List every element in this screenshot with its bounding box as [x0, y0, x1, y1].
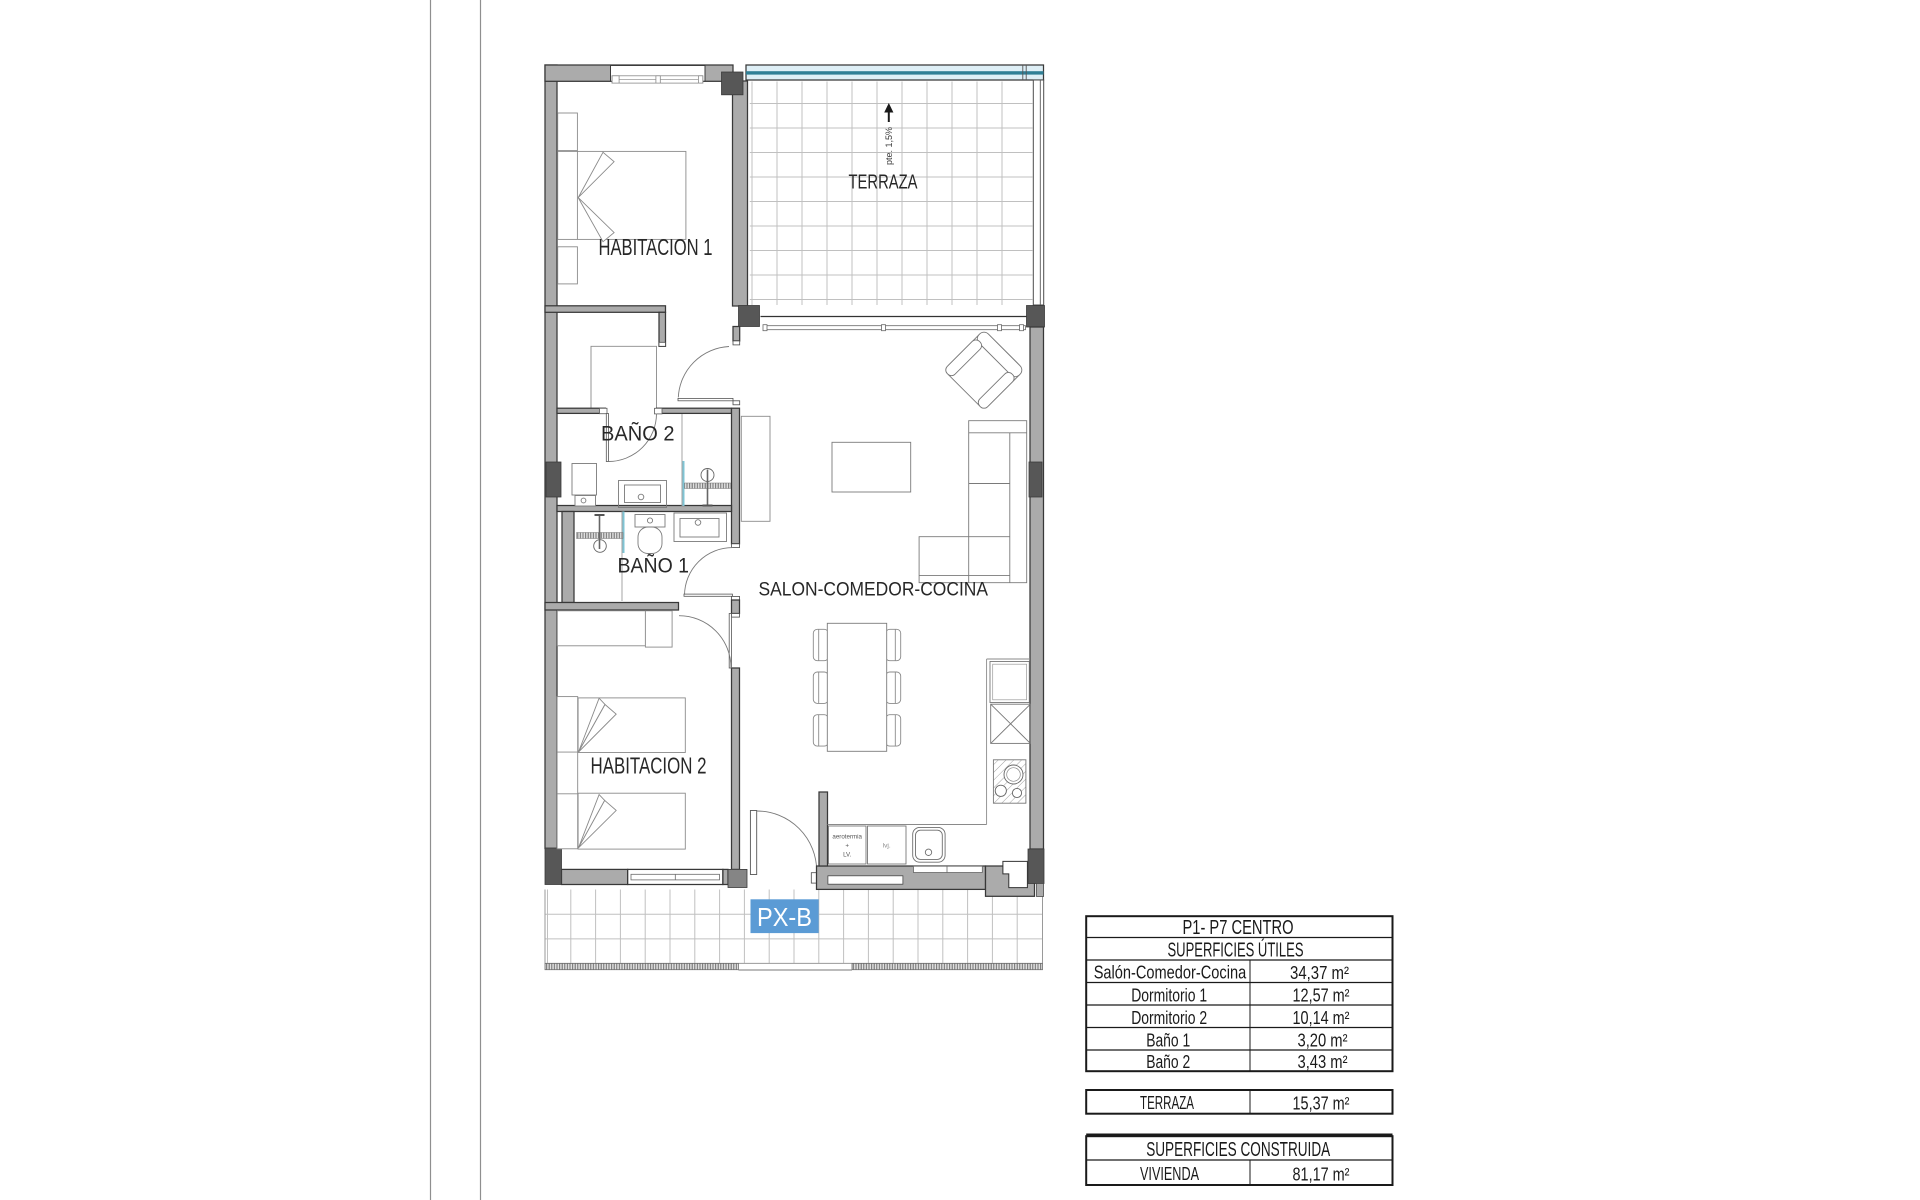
svg-text:HABITACION 2: HABITACION 2 [591, 753, 707, 779]
svg-text:HABITACION 1: HABITACION 1 [599, 234, 713, 260]
svg-text:VIVIENDA: VIVIENDA [1140, 1164, 1199, 1184]
svg-text:Dormitorio 2: Dormitorio 2 [1131, 1008, 1207, 1028]
svg-text:TERRAZA: TERRAZA [1140, 1093, 1194, 1113]
svg-text:pte. 1,5%: pte. 1,5% [884, 127, 894, 165]
svg-text:3,43 m²: 3,43 m² [1298, 1052, 1348, 1072]
svg-text:SUPERFICIES CONSTRUIDA: SUPERFICIES CONSTRUIDA [1146, 1139, 1330, 1161]
svg-text:Baño 1: Baño 1 [1146, 1031, 1190, 1051]
svg-text:P1- P7 CENTRO: P1- P7 CENTRO [1183, 917, 1294, 939]
svg-text:PX-B: PX-B [757, 902, 812, 932]
svg-text:12,57 m²: 12,57 m² [1293, 986, 1350, 1006]
svg-text:lvj.: lvj. [883, 843, 891, 850]
svg-text:10,14 m²: 10,14 m² [1293, 1008, 1350, 1028]
svg-text:15,37 m²: 15,37 m² [1293, 1094, 1350, 1114]
svg-text:3,20 m²: 3,20 m² [1298, 1031, 1348, 1051]
svg-text:34,37 m²: 34,37 m² [1290, 963, 1349, 983]
svg-text:BAÑO 1: BAÑO 1 [618, 554, 690, 578]
svg-text:Baño 2: Baño 2 [1146, 1052, 1190, 1072]
svg-text:81,17 m²: 81,17 m² [1293, 1165, 1350, 1185]
svg-text:TERRAZA: TERRAZA [849, 171, 918, 194]
svg-text:SALON-COMEDOR-COCINA: SALON-COMEDOR-COCINA [759, 580, 989, 601]
svg-text:Salón-Comedor-Cocina: Salón-Comedor-Cocina [1094, 963, 1247, 983]
svg-text:Dormitorio 1: Dormitorio 1 [1131, 986, 1207, 1006]
svg-text:BAÑO 2: BAÑO 2 [601, 422, 675, 446]
svg-text:+: + [845, 843, 849, 850]
svg-text:LV.: LV. [843, 852, 852, 859]
svg-text:aerotermia: aerotermia [832, 834, 862, 841]
svg-text:SUPERFICIES ÚTILES: SUPERFICIES ÚTILES [1168, 939, 1304, 962]
